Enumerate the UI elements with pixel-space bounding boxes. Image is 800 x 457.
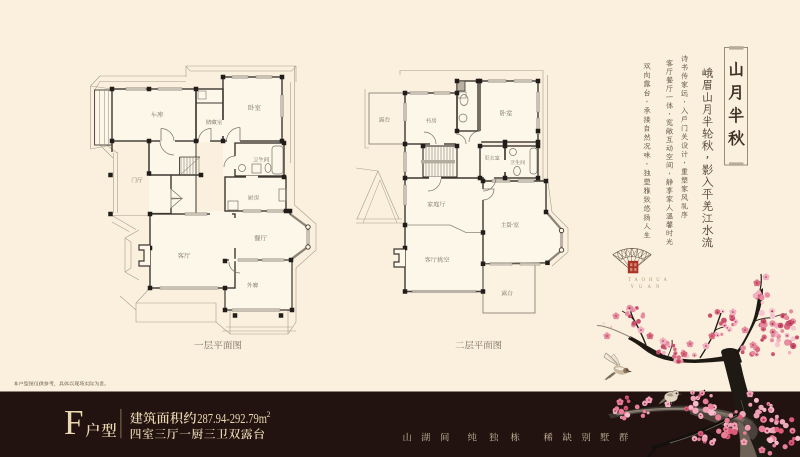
svg-text:F: F [64, 403, 83, 442]
svg-text:287.94-292.79m: 287.94-292.79m [197, 411, 267, 426]
svg-text:2: 2 [267, 410, 271, 419]
svg-text:YUAN: YUAN [631, 285, 665, 290]
svg-text:TAOHUA: TAOHUA [628, 278, 671, 283]
